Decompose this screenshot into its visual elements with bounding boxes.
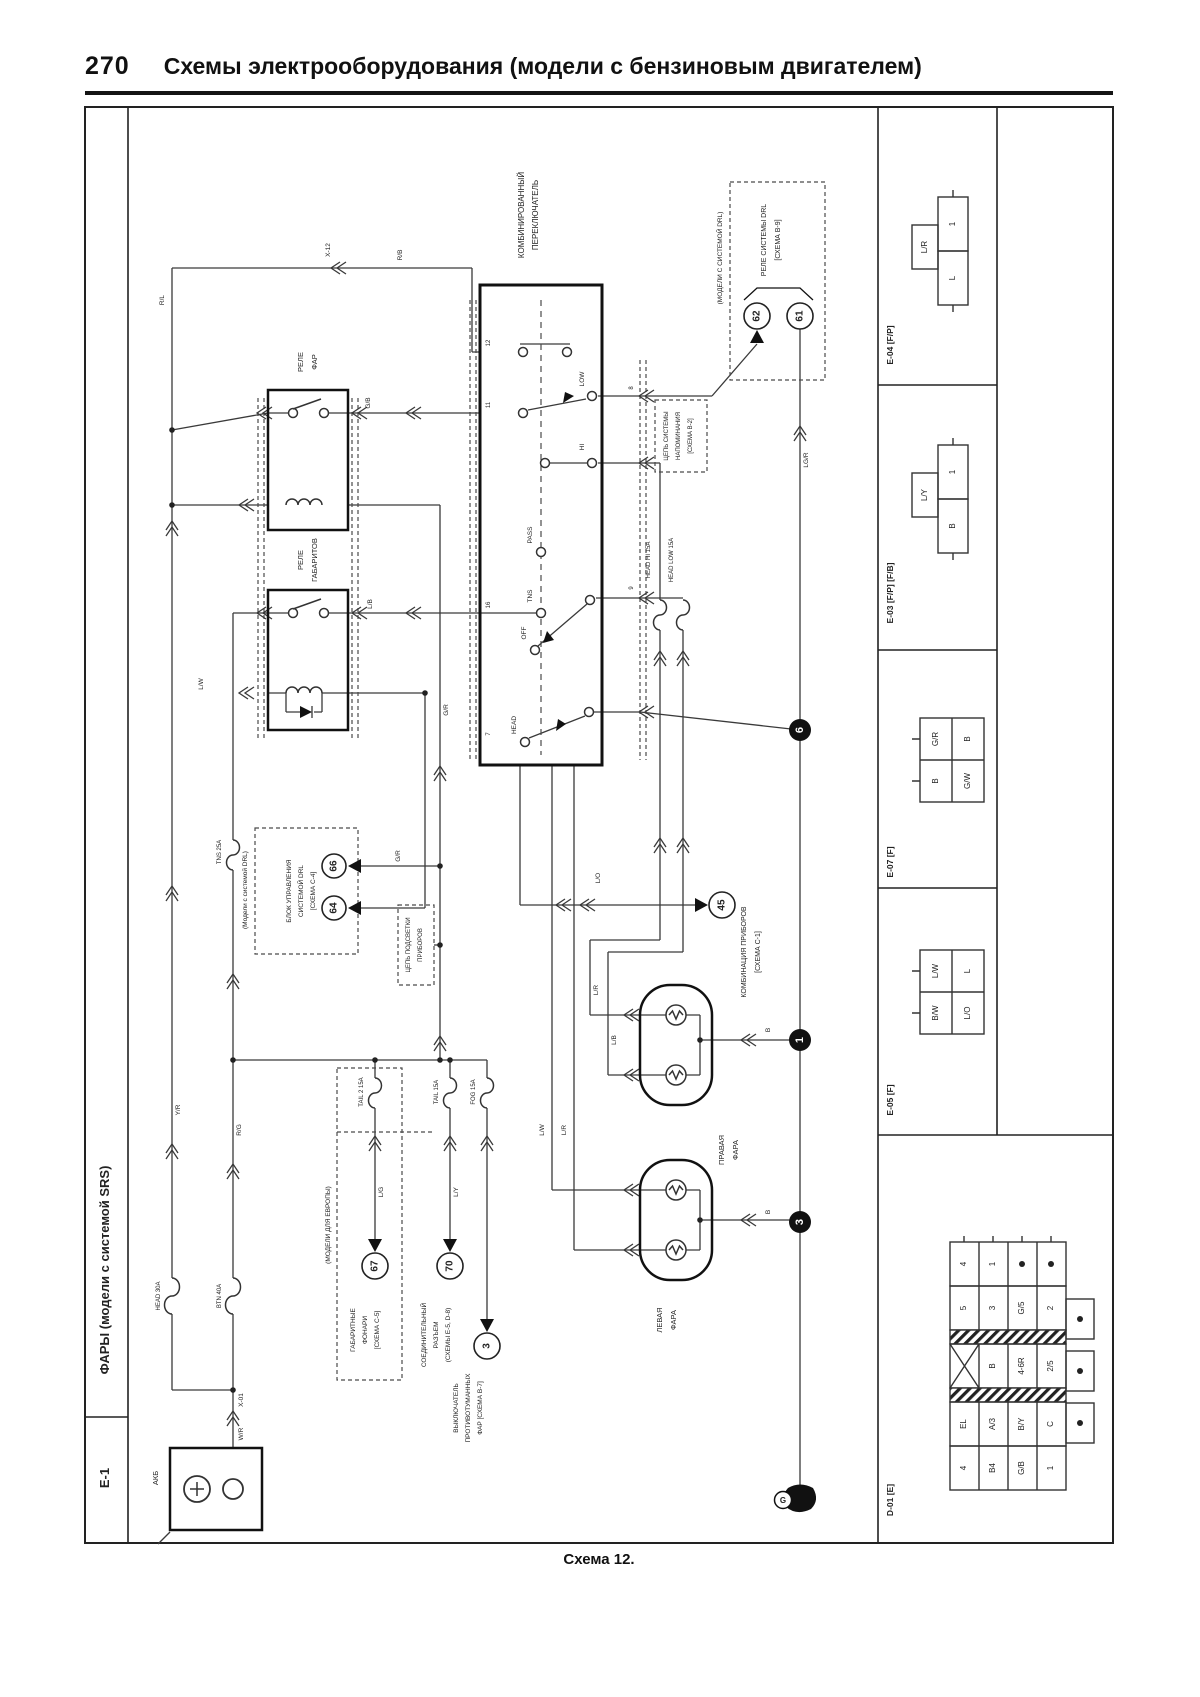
- fog-switch-label3: ФАР [СХЕМА В-7]: [477, 1381, 484, 1435]
- connector-cell: L/R: [920, 241, 929, 254]
- connector-cell: L: [948, 275, 957, 280]
- grid-cell: B4: [988, 1463, 997, 1473]
- grid-cell: 2: [1046, 1305, 1055, 1310]
- wire-label: W/R: [238, 1427, 245, 1440]
- link-1: 1: [794, 1037, 806, 1043]
- ref-67: 67: [370, 1260, 381, 1272]
- head-link-label: HEAD 30A: [156, 1281, 162, 1310]
- wire-label: X-12: [325, 243, 332, 257]
- wire-label: G/R: [443, 704, 450, 716]
- head-relay-label: РЕЛЕ: [296, 352, 305, 372]
- wire-label: G/B: [365, 397, 372, 408]
- wiring-diagram: ФАРЫ (модели с системой SRS) E-1: [0, 0, 1200, 1697]
- tail-lamps-label3: [СХЕМА С-5]: [374, 1310, 381, 1349]
- ref-62: 62: [752, 310, 763, 322]
- grid-cell: B/Y: [1017, 1417, 1026, 1431]
- wire-label: R/B: [397, 250, 404, 261]
- ground-ref: G: [780, 1496, 786, 1505]
- grid-cell: G/B: [1017, 1461, 1026, 1475]
- illumination-label: ЦЕПЬ ПОДСВЕТКИ: [406, 917, 412, 972]
- grid-cell: 5: [959, 1305, 968, 1310]
- wire-label: Y/R: [175, 1104, 182, 1115]
- reminder-label3: [СХЕМА В-2]: [688, 418, 694, 454]
- grid-cell: C: [1046, 1421, 1055, 1427]
- reminder-label2: НАПОМИНАНИЯ: [676, 412, 682, 460]
- right-lamp-label2: ФАРА: [731, 1140, 740, 1160]
- wire-label: R/L: [159, 295, 166, 306]
- connector-label-d01: D-01 [E]: [885, 1484, 895, 1516]
- link-3: 3: [794, 1219, 806, 1225]
- connector-cell: B: [948, 523, 957, 528]
- connector-cell: B: [963, 736, 972, 741]
- tns-relay-label: РЕЛЕ: [296, 550, 305, 570]
- drl-models-label: (МОДЕЛИ С СИСТЕМОЙ DRL): [715, 212, 724, 305]
- wire-label: L/O: [595, 873, 602, 883]
- diagram-frame: [85, 107, 1113, 1543]
- sw-pass: PASS: [527, 526, 534, 544]
- sidebar-code-label: E-1: [97, 1468, 112, 1488]
- head-relay-label2: ФАР: [310, 354, 319, 370]
- wire-label: L/B: [611, 1035, 618, 1045]
- connector-cell: B/W: [931, 1005, 940, 1021]
- connector-cell: L/W: [931, 963, 940, 978]
- right-lamp-label: ПРАВАЯ: [717, 1135, 726, 1165]
- grid-cell: 4: [959, 1465, 968, 1470]
- grid-cell: 1: [1046, 1465, 1055, 1470]
- wire-label: L/R: [561, 1125, 568, 1135]
- grid-cell: 3: [988, 1305, 997, 1310]
- reminder-label: ЦЕПЬ СИСТЕМЫ: [664, 411, 670, 460]
- sw-hi: HI: [579, 444, 586, 451]
- sw-tns: TNS: [527, 589, 534, 603]
- wire-label: L/W: [198, 677, 205, 689]
- connector-label-e05: E-05 [F]: [885, 1084, 895, 1115]
- tns-fuse-label: TNS 25A: [217, 840, 223, 864]
- meter-label2: [СХЕМА С-1]: [755, 931, 762, 973]
- tail-lamps-label2: ФОНАРИ: [362, 1316, 369, 1344]
- figure-caption: Схема 12.: [85, 1551, 1113, 1568]
- drl-unit-models-label: (Модели с системой DRL): [241, 851, 249, 929]
- combo-switch-label2: ПЕРЕКЛЮЧАТЕЛЬ: [531, 180, 540, 250]
- wire-label: L/G: [378, 1187, 385, 1197]
- sw-pin11: 11: [486, 401, 492, 408]
- tail-lamps-label: ГАБАРИТНЫЕ: [350, 1308, 357, 1352]
- connector-cell: G/W: [963, 773, 972, 789]
- drl-unit-label: БЛОК УПРАВЛЕНИЯ: [286, 859, 293, 922]
- drl-unit-label2: СИСТЕМОЙ DRL: [296, 865, 305, 917]
- sw-off: OFF: [521, 626, 528, 639]
- grid-cell: 2/5: [1046, 1360, 1055, 1372]
- grid-cell: 1: [988, 1261, 997, 1266]
- connector-label-e04: E-04 [F/P]: [885, 325, 895, 364]
- drl-unit-label3: [СХЕМА С-4]: [310, 871, 317, 910]
- meter-label: КОМБИНАЦИЯ ПРИБОРОВ: [741, 906, 748, 997]
- head-low-fuse-label: HEAD LOW 15A: [669, 538, 675, 582]
- tail-fuse-label: TAIL 15A: [434, 1080, 440, 1104]
- connector-label-e03: E-03 [F/P] [F/B]: [885, 562, 895, 623]
- sw-head: HEAD: [511, 716, 518, 734]
- sw-pin16: 16: [486, 601, 492, 608]
- battery-label: АКБ: [151, 1471, 160, 1485]
- grid-cell: B: [988, 1363, 997, 1368]
- connector-cell: G/R: [931, 732, 940, 746]
- connector-cell: 1: [948, 469, 957, 474]
- wire-label: R/G: [236, 1124, 243, 1136]
- joint-connector-label: СОЕДИНИТЕЛЬНЫЙ: [419, 1303, 428, 1368]
- drl-relay-label: РЕЛЕ СИСТЕМЫ DRL: [761, 204, 768, 276]
- sw-low: LOW: [579, 371, 586, 387]
- grid-cell: 4-6R: [1017, 1357, 1026, 1375]
- connector-label-e07: E-07 [F]: [885, 846, 895, 877]
- wire-label: LG/R: [803, 452, 810, 467]
- link-6: 6: [794, 727, 806, 733]
- wire-label: X-01: [238, 1393, 245, 1407]
- wire-label: L/Y: [453, 1186, 460, 1196]
- grid-cell: G/5: [1017, 1301, 1026, 1314]
- connector-cell: B: [931, 778, 940, 783]
- sw-pin12: 12: [486, 339, 492, 346]
- ref-66: 66: [329, 860, 340, 872]
- wire-label: G/R: [395, 850, 402, 862]
- ref-61: 61: [795, 310, 806, 322]
- btn-link-label: BTN 40A: [217, 1284, 223, 1308]
- joint-connector-label3: (СХЕМЫ Е-5, D-8): [445, 1308, 452, 1363]
- wire-label: L/B: [367, 599, 374, 609]
- fog-switch-label: ВЫКЛЮЧАТЕЛЬ: [453, 1383, 460, 1433]
- head-hi-fuse-label: HEAD HI 15A: [646, 542, 652, 579]
- fog-fuse-label: FOG 15A: [471, 1079, 477, 1104]
- joint-connector-label2: РАЗЪЕМ: [433, 1322, 440, 1349]
- connector-cell: 1: [948, 221, 957, 226]
- ref-45: 45: [717, 899, 728, 911]
- europe-label: (МОДЕЛИ ДЛЯ ЕВРОПЫ): [325, 1186, 332, 1264]
- ref-70: 70: [445, 1260, 456, 1272]
- drl-relay-label2: [СХЕМА В-9]: [775, 219, 782, 260]
- sidebar-system-label: ФАРЫ (модели с системой SRS): [97, 1166, 112, 1375]
- wire-label: L/R: [593, 985, 600, 995]
- left-lamp-label: ЛЕВАЯ: [655, 1307, 664, 1332]
- tail2-fuse-label: TAIL 2 15A: [359, 1077, 365, 1106]
- tns-relay-label2: ГАБАРИТОВ: [310, 538, 319, 582]
- ref-64: 64: [329, 902, 340, 914]
- combo-switch-label: КОМБИНИРОВАННЫЙ: [517, 172, 526, 258]
- connector-cell: L: [963, 968, 972, 973]
- grid-cell: EL: [959, 1419, 968, 1429]
- wire-label: L/W: [539, 1123, 546, 1135]
- wire-label: B: [765, 1028, 772, 1032]
- fog-switch-label2: ПРОТИВОТУМАННЫХ: [465, 1373, 472, 1443]
- manual-page: 270Схемы электрооборудования (модели с б…: [0, 0, 1200, 1697]
- grid-cell: A/3: [988, 1417, 997, 1430]
- wire-label: B: [765, 1210, 772, 1214]
- connector-cell: L/Y: [920, 488, 929, 501]
- illumination-label2: ПРИБОРОВ: [418, 928, 424, 962]
- left-lamp-label2: ФАРА: [669, 1310, 678, 1330]
- connector-cell: L/O: [963, 1007, 972, 1020]
- ref-3: 3: [482, 1343, 493, 1349]
- grid-cell: 4: [959, 1261, 968, 1266]
